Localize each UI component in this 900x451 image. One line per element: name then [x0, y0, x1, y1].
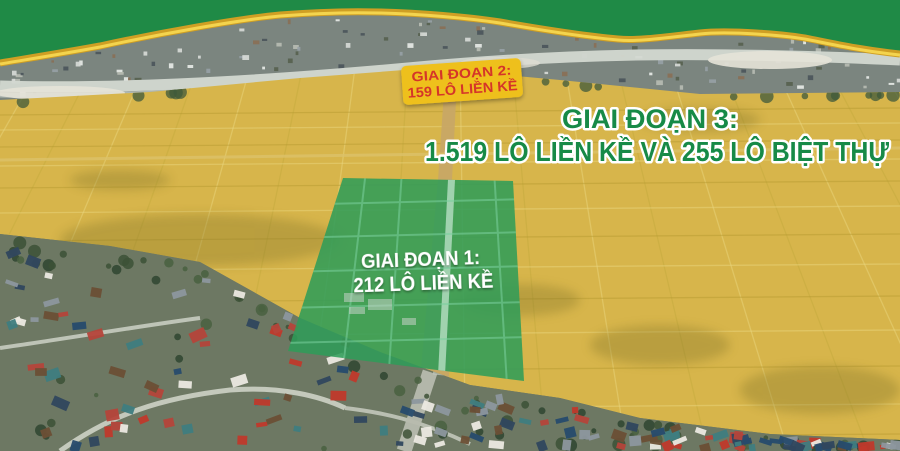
roof	[469, 406, 480, 413]
tree	[258, 305, 265, 312]
village-house	[427, 23, 430, 25]
phase1-label-line1: GIAI ĐOẠN 1:	[361, 246, 481, 273]
village-house	[63, 67, 68, 71]
village-house	[482, 27, 485, 30]
roof	[30, 317, 38, 322]
village-house	[476, 26, 480, 31]
tree-cluster	[563, 80, 570, 87]
village-house	[475, 44, 482, 48]
roof	[178, 380, 192, 388]
village-house	[21, 73, 24, 75]
tree	[461, 407, 469, 415]
tree	[152, 276, 161, 285]
village-house	[500, 49, 505, 52]
tree	[424, 394, 429, 399]
roof	[380, 426, 388, 436]
roof	[105, 408, 120, 421]
aerial-masterplan-image: GIAI ĐOẠN 2: 159 LÔ LIỀN KỀ GIAI ĐOẠN 3:…	[0, 0, 900, 451]
village-house	[656, 80, 663, 85]
phase1-label: GIAI ĐOẠN 1: 212 LÔ LIỀN KỀ	[352, 246, 494, 298]
tree-cluster	[730, 93, 738, 101]
village-house	[680, 85, 683, 89]
village-house	[384, 37, 388, 40]
village-house	[440, 26, 446, 29]
tree-cluster	[594, 83, 602, 91]
village-house	[297, 47, 300, 51]
village-house	[188, 65, 194, 68]
tree	[654, 421, 662, 429]
village-house	[112, 54, 115, 58]
tree	[164, 258, 173, 267]
village-house	[178, 49, 182, 53]
roof	[572, 407, 579, 414]
village-house	[117, 70, 123, 73]
village-house	[428, 20, 432, 22]
tree-cluster	[802, 93, 809, 100]
village-house	[400, 52, 403, 56]
shadow-patch	[70, 170, 170, 190]
village-house	[198, 56, 201, 59]
village-house	[288, 59, 293, 64]
phase3-title-line2: 1.519 LÔ LIỀN KỀ VÀ 255 LÔ BIỆT THỰ	[425, 135, 890, 167]
village-house	[206, 69, 210, 73]
construction-building	[368, 299, 392, 310]
tree	[380, 372, 388, 380]
village-house	[752, 70, 755, 74]
tree	[183, 266, 188, 271]
roof	[237, 436, 247, 445]
tree	[201, 270, 209, 278]
tree	[174, 334, 181, 341]
tree	[122, 258, 133, 269]
roof	[330, 391, 346, 401]
phase3-title-line1: GIAI ĐOẠN 3:	[562, 104, 738, 134]
tree	[591, 428, 596, 433]
village-house	[668, 74, 673, 78]
roof	[89, 436, 100, 447]
village-house	[346, 43, 351, 48]
tree	[13, 236, 26, 249]
village-house	[262, 39, 267, 41]
village-house	[705, 67, 708, 72]
village-house	[866, 76, 869, 79]
roof	[200, 341, 211, 347]
village-house	[276, 43, 281, 47]
village-house	[51, 60, 54, 62]
sandbank	[708, 51, 832, 69]
tree	[521, 401, 529, 409]
village-house	[477, 30, 483, 35]
village-house	[52, 69, 58, 72]
roof	[562, 439, 572, 451]
village-house	[828, 47, 831, 50]
village-house	[76, 62, 81, 67]
tree	[112, 265, 122, 275]
tree-cluster	[542, 78, 550, 86]
village-house	[253, 40, 259, 44]
tree	[414, 377, 421, 384]
village-house	[649, 73, 652, 76]
tree	[94, 393, 98, 397]
village-house	[117, 72, 123, 75]
village-house	[790, 48, 794, 51]
village-house	[420, 32, 427, 36]
roof	[396, 441, 404, 446]
tree	[106, 263, 111, 268]
phase2-badge: GIAI ĐOẠN 2: 159 LÔ LIỀN KỀ	[401, 58, 523, 105]
tree	[539, 407, 546, 414]
village-house	[296, 51, 299, 55]
village-house	[361, 33, 365, 36]
village-house	[845, 64, 850, 67]
village-house	[545, 72, 549, 74]
tree	[140, 257, 146, 263]
tree	[194, 275, 203, 284]
village-house	[407, 43, 413, 48]
roof	[354, 416, 367, 423]
roof	[337, 366, 349, 374]
village-house	[816, 67, 822, 70]
roof	[119, 424, 128, 433]
village-house	[343, 30, 348, 33]
roof	[90, 287, 102, 298]
village-house	[242, 55, 249, 60]
village-house	[262, 67, 265, 70]
roof	[460, 435, 470, 444]
roof	[254, 399, 270, 406]
village-house	[96, 52, 102, 54]
roof	[35, 368, 47, 376]
village-house	[738, 76, 744, 79]
aerial-photo: GIAI ĐOẠN 2: 159 LÔ LIỀN KỀ GIAI ĐOẠN 3:…	[0, 0, 900, 451]
tree	[394, 385, 405, 396]
roof	[629, 435, 641, 446]
village-house	[741, 69, 746, 72]
village-house	[619, 78, 626, 82]
tree	[60, 251, 67, 258]
village-house	[863, 86, 866, 89]
village-house	[658, 60, 663, 65]
village-house	[738, 43, 743, 46]
village-house	[786, 82, 793, 86]
village-house	[288, 19, 291, 24]
village-house	[675, 64, 680, 67]
village-house	[12, 71, 17, 76]
roof	[202, 278, 211, 283]
village-house	[676, 77, 680, 81]
village-house	[477, 48, 481, 51]
construction-building	[349, 307, 365, 314]
tree	[47, 419, 56, 428]
phase1-label-line2: 212 LÔ LIỀN KỀ	[353, 269, 494, 298]
village-house	[443, 46, 448, 49]
village-house	[562, 72, 568, 77]
village-house	[709, 79, 716, 83]
roof	[72, 322, 87, 331]
village-house	[889, 83, 895, 85]
roof	[734, 431, 744, 440]
village-house	[336, 19, 340, 21]
village-house	[274, 67, 278, 71]
roof	[411, 399, 425, 404]
shadow-patch	[590, 325, 730, 365]
village-house	[542, 45, 548, 48]
construction-building	[402, 318, 416, 325]
village-house	[144, 52, 148, 56]
tree	[17, 256, 24, 263]
village-house	[594, 43, 597, 48]
tree	[348, 360, 360, 372]
village-house	[419, 23, 422, 26]
village-house	[797, 85, 804, 88]
roof	[181, 423, 193, 434]
tree	[644, 420, 655, 431]
tree	[48, 262, 56, 270]
village-house	[169, 63, 174, 68]
roof	[488, 440, 504, 449]
roof	[421, 427, 433, 438]
village-house	[152, 62, 156, 66]
shadow-patch	[740, 366, 900, 414]
village-house	[808, 75, 813, 80]
tree	[618, 420, 625, 427]
village-house	[465, 38, 471, 42]
roof	[748, 444, 756, 451]
tree	[175, 355, 183, 363]
tree	[403, 429, 412, 438]
village-house	[239, 29, 244, 32]
